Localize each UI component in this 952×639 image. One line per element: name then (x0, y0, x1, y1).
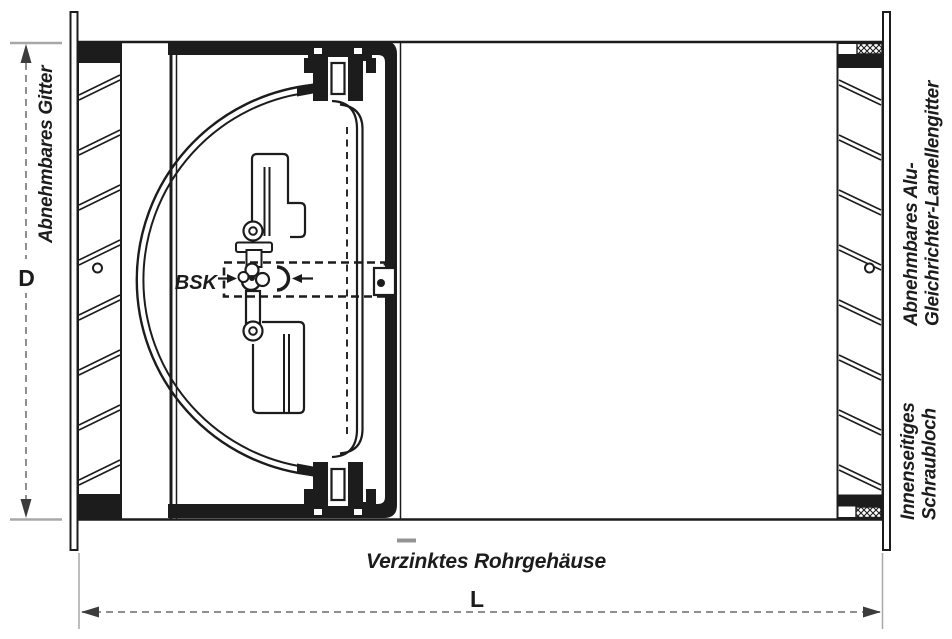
fuse-disc-right (256, 273, 269, 286)
label-right-grille-line1: Abnehmbares Alu- (901, 163, 922, 327)
l-arrow-right (863, 607, 881, 618)
thermal-release-mechanism (218, 154, 395, 413)
l-arrow-left (81, 607, 99, 618)
left-grille-bottom-gasket (80, 507, 105, 518)
fuse-arrow-left-head (227, 274, 237, 283)
lower-pivot-pin (249, 327, 257, 335)
right-grille-screw-hole (865, 264, 874, 273)
lower-spring-clip-slot (284, 334, 289, 412)
label-right-grille-line2: Gleichrichter-Lamellengitter (923, 79, 944, 326)
right-flange-plate (883, 12, 890, 550)
fuse-holder-pin (377, 279, 385, 287)
bottom-hinge-notch-left (314, 509, 322, 515)
d-label: D (18, 265, 35, 291)
drawing-canvas: D L Abnehmbares Gitter BSK Verzinktes Ro… (0, 0, 952, 639)
fuse-core (249, 275, 255, 281)
top-hinge-notch-left (314, 48, 322, 54)
left-grille-panel (78, 43, 121, 518)
bottom-hinge-right-wing (366, 489, 376, 504)
d-arrow-down (21, 499, 32, 518)
right-grille-bottom-band (838, 495, 883, 507)
label-screw-hole-line2: Schraubloch (920, 408, 941, 520)
fusible-link (218, 264, 313, 291)
right-grille-bottom-gasket (856, 507, 881, 518)
left-grille-top-gasket (80, 44, 105, 55)
label-screw-hole: InnenseitigesSchraubloch (898, 402, 941, 520)
top-hinge-notch-right (354, 48, 362, 54)
right-grille-top-gasket (857, 44, 882, 55)
top-hinge-pin (332, 63, 345, 94)
top-hinge-left-post (313, 55, 328, 101)
top-hinge (304, 48, 376, 101)
right-grille (838, 43, 883, 518)
top-hinge-left-wing (304, 58, 314, 73)
left-grille-screw-hole (93, 264, 102, 273)
left-grille (78, 43, 121, 518)
bottom-hinge-left-wing (304, 489, 314, 504)
left-flange-plate (71, 12, 78, 550)
label-bsk: BSK (175, 272, 219, 294)
pin-end-mark (397, 539, 416, 543)
blade-arc-bottom-end (297, 464, 313, 477)
blade-bottom-corner (332, 430, 363, 457)
fuse-crescent (277, 267, 289, 290)
label-housing: Verzinktes Rohrgehäuse (366, 550, 606, 573)
bottom-hinge (304, 462, 376, 515)
blade-top-corner (332, 101, 363, 128)
label-screw-hole-line1: Innenseitiges (898, 402, 919, 520)
bottom-hinge-notch-right (354, 509, 362, 515)
right-grille-top-band (838, 54, 883, 68)
bottom-hinge-right-post (348, 462, 363, 508)
bottom-hinge-left-post (313, 462, 328, 508)
label-left-grille: Abnehmbares Gitter (36, 64, 57, 244)
d-arrow-up (21, 44, 32, 63)
label-right-grille: Abnehmbares Alu-Gleichrichter-Lamellengi… (901, 79, 944, 327)
blade-arc-top-end (297, 84, 313, 97)
blade-arc-outer (137, 85, 313, 475)
bottom-hinge-pin (332, 469, 345, 500)
upper-pivot-pin (249, 227, 257, 235)
fire-damper-technical-drawing: D L Abnehmbares Gitter BSK Verzinktes Ro… (0, 0, 952, 639)
top-hinge-right-wing (366, 58, 376, 73)
fuse-arrow-right-head (292, 274, 302, 283)
fuse-disc-left (239, 272, 249, 282)
right-grille-panel (838, 43, 883, 518)
top-hinge-right-post (348, 55, 363, 101)
upper-spring-clip-slot (265, 167, 270, 236)
l-label: L (470, 586, 484, 612)
